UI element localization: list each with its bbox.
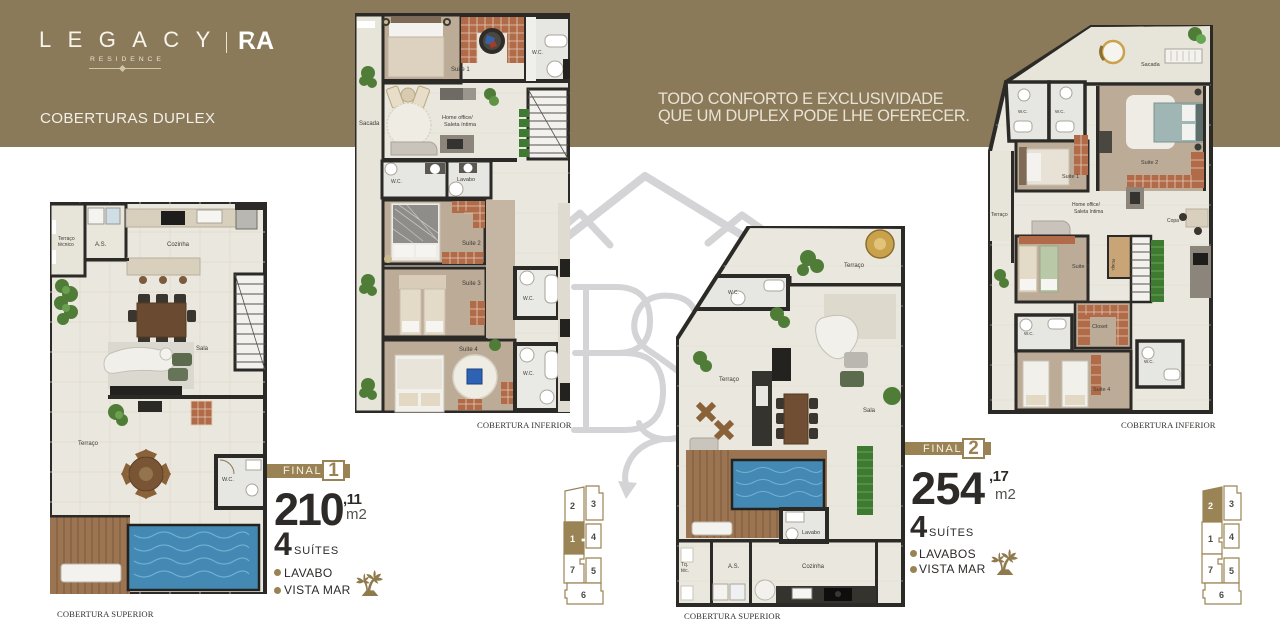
svg-text:Home office/: Home office/ (1072, 202, 1101, 208)
svg-text:2: 2 (1208, 501, 1213, 511)
svg-text:Cozinha: Cozinha (167, 242, 190, 248)
svg-text:téc.: téc. (681, 568, 689, 574)
svg-text:5: 5 (1229, 566, 1234, 576)
svg-text:Suite 1: Suite 1 (451, 67, 470, 73)
svg-text:7: 7 (1208, 565, 1213, 575)
svg-text:5: 5 (591, 566, 596, 576)
svg-text:A.S.: A.S. (728, 564, 740, 570)
svg-text:Saleta íntima: Saleta íntima (444, 122, 477, 128)
svg-text:Suite 3: Suite 3 (462, 281, 481, 287)
svg-text:4: 4 (1229, 532, 1234, 542)
svg-text:Terraço: Terraço (991, 212, 1008, 218)
svg-text:W.C.: W.C. (1055, 109, 1065, 114)
svg-text:Suite 4: Suite 4 (1093, 387, 1110, 393)
svg-text:W.C.: W.C. (1024, 331, 1034, 336)
svg-text:W.C.: W.C. (523, 371, 534, 377)
svg-text:Suite 3: Suite 3 (1072, 264, 1089, 270)
svg-text:Suite 2: Suite 2 (462, 241, 481, 247)
svg-text:Closet: Closet (1092, 324, 1108, 330)
svg-text:Suite 2: Suite 2 (1141, 160, 1158, 166)
svg-text:6: 6 (1219, 590, 1224, 600)
svg-text:7: 7 (570, 565, 575, 575)
svg-text:Saleta íntima: Saleta íntima (1074, 209, 1103, 215)
svg-text:4: 4 (591, 532, 596, 542)
svg-text:Sacada: Sacada (1141, 62, 1161, 68)
svg-text:W.C.: W.C. (391, 179, 402, 185)
svg-text:W.C.: W.C. (1018, 109, 1028, 114)
svg-text:W.C.: W.C. (728, 290, 739, 296)
svg-text:W.C.: W.C. (222, 477, 234, 483)
svg-text:Sacada: Sacada (359, 121, 380, 127)
svg-text:1: 1 (570, 534, 575, 544)
svg-text:Terraço: Terraço (844, 263, 865, 269)
svg-text:Sala: Sala (196, 346, 209, 352)
svg-text:Sala: Sala (863, 408, 876, 414)
svg-text:W.C.: W.C. (523, 296, 534, 302)
svg-text:W.C.: W.C. (532, 50, 543, 56)
svg-text:Terraço: Terraço (78, 441, 99, 447)
svg-text:Roup.: Roup. (1111, 259, 1116, 271)
svg-text:6: 6 (581, 590, 586, 600)
svg-text:A.S.: A.S. (95, 242, 107, 248)
svg-text:Suite 4: Suite 4 (459, 347, 478, 353)
svg-text:1: 1 (1208, 534, 1213, 544)
svg-text:Terraço: Terraço (719, 377, 740, 383)
svg-text:Lavabo: Lavabo (802, 530, 820, 536)
svg-text:Cozinha: Cozinha (802, 564, 825, 570)
svg-text:Lavabo: Lavabo (457, 177, 475, 183)
svg-text:Copa: Copa (1167, 218, 1179, 224)
svg-text:Home office/: Home office/ (442, 115, 473, 121)
svg-text:Suite 1: Suite 1 (1062, 174, 1079, 180)
svg-text:W.C.: W.C. (1144, 359, 1154, 364)
svg-text:técnico: técnico (58, 242, 74, 248)
svg-text:3: 3 (1229, 499, 1234, 509)
svg-text:3: 3 (591, 499, 596, 509)
svg-text:2: 2 (570, 501, 575, 511)
